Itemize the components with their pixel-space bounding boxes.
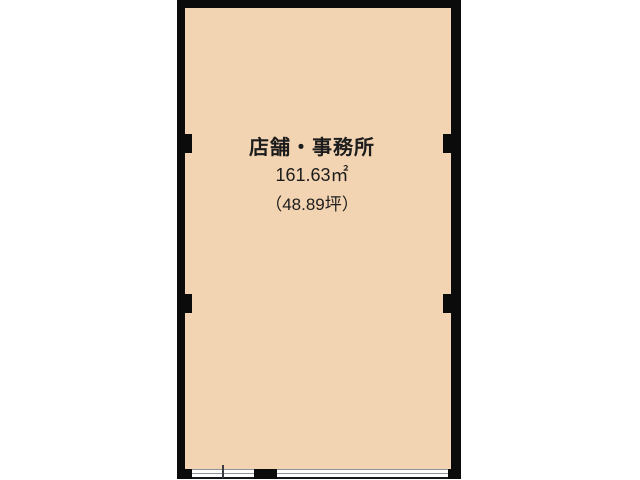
floor-plan-canvas: 店舗・事務所 161.63㎡ （48.89坪） [0,0,640,480]
pillar-right-upper [443,134,461,153]
wall-bottom-left-segment [177,469,192,479]
window-pane-line [277,473,448,474]
room-label: 店舗・事務所 [181,131,443,160]
room-area-sqm: 161.63㎡ [181,161,443,187]
room-floor [185,8,451,469]
floor-plan: 店舗・事務所 161.63㎡ （48.89坪） [177,0,461,479]
room-area-tsubo: （48.89坪） [181,190,443,215]
wall-bottom-center-segment [254,469,277,479]
window-mullion-tick [222,465,224,478]
wall-right [451,0,461,479]
pillar-left-lower [177,294,192,313]
wall-bottom-right-corner [448,469,461,479]
pillar-right-lower [443,294,461,313]
bottom-right-sliding-window [277,469,448,479]
wall-left [177,0,185,479]
wall-top [177,0,461,8]
